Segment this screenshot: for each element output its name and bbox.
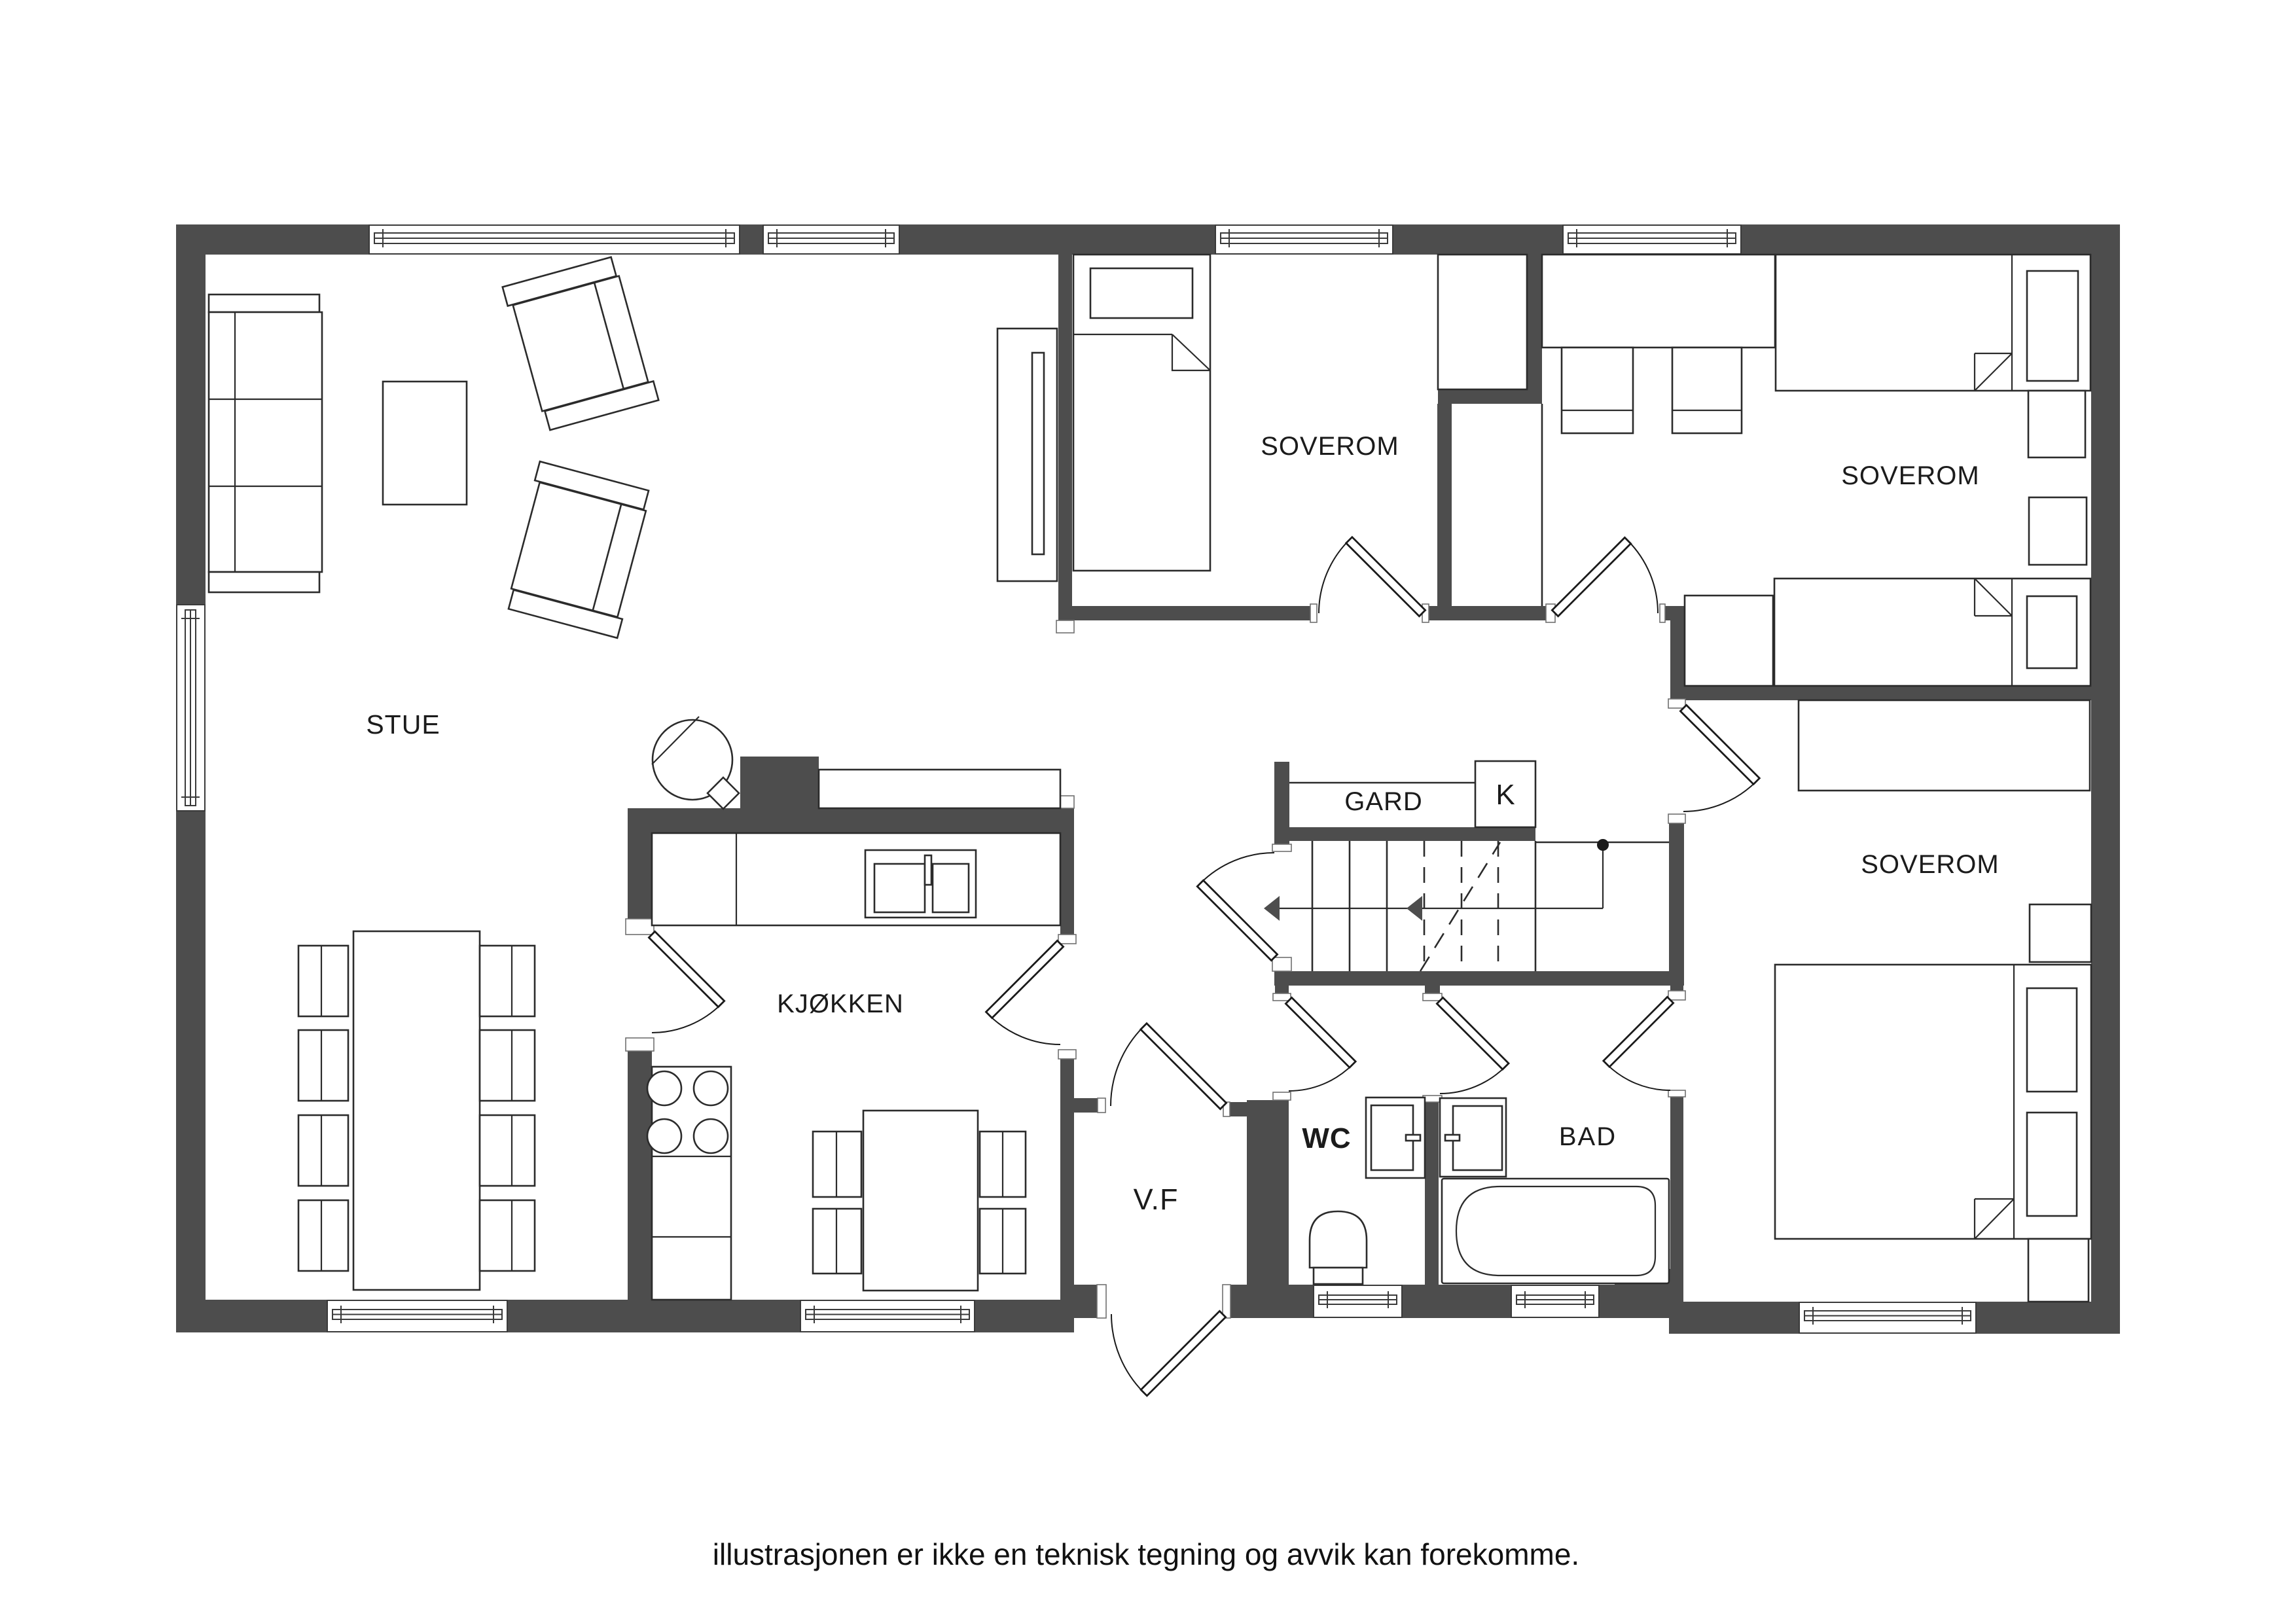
- svg-text:V.F: V.F: [1134, 1183, 1179, 1216]
- svg-text:WC: WC: [1302, 1122, 1351, 1154]
- svg-text:SOVEROM: SOVEROM: [1861, 850, 1999, 879]
- svg-text:SOVEROM: SOVEROM: [1841, 461, 1979, 490]
- svg-text:BAD: BAD: [1559, 1122, 1617, 1151]
- svg-text:illustrasjonen er ikke en tekn: illustrasjonen er ikke en teknisk tegnin…: [713, 1537, 1579, 1571]
- svg-text:SOVEROM: SOVEROM: [1261, 432, 1399, 461]
- svg-text:GARD: GARD: [1344, 787, 1423, 816]
- svg-text:KJØKKEN: KJØKKEN: [777, 990, 904, 1018]
- svg-text:K: K: [1496, 779, 1515, 811]
- svg-text:STUE: STUE: [366, 709, 440, 740]
